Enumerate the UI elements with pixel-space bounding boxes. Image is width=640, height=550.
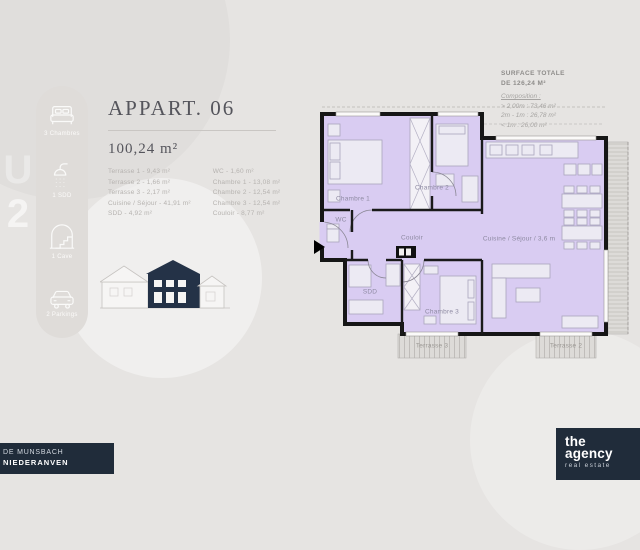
logo-agency: agency bbox=[565, 448, 640, 460]
room-label-chambre2: Chambre 2 bbox=[415, 185, 449, 192]
room-item: Cuisine / Séjour - 41,91 m² bbox=[108, 199, 191, 210]
room-label-sdd: SDD bbox=[363, 289, 377, 296]
address-line1: DE MUNSBACH bbox=[3, 448, 114, 458]
feature-label: 2 Parkings bbox=[46, 312, 77, 318]
project-address: DE MUNSBACH NIEDERANVEN bbox=[0, 443, 114, 474]
room-item: Couloir - 8,77 m² bbox=[213, 209, 281, 220]
room-item: Terrasse 2 - 1,66 m² bbox=[108, 178, 191, 189]
room-item: Chambre 3 - 12,54 m² bbox=[213, 199, 281, 210]
building-elevation bbox=[100, 256, 230, 314]
elevation-drawing bbox=[100, 256, 230, 314]
room-label-terrasse2: Terrasse 2 bbox=[550, 343, 582, 350]
surface-title: SURFACE TOTALE bbox=[501, 69, 565, 79]
feature-label: 3 Chambres bbox=[44, 131, 80, 137]
divider bbox=[108, 130, 276, 131]
shower-icon bbox=[47, 162, 77, 190]
feature-sidebar: 3 Chambres 1 SDD 1 Cave 2 Parkings bbox=[36, 86, 88, 338]
room-item: Terrasse 3 - 2,17 m² bbox=[108, 188, 191, 199]
room-label-chambre3: Chambre 3 bbox=[425, 309, 459, 316]
room-item: Chambre 1 - 13,08 m² bbox=[213, 178, 281, 189]
room-list-left: Terrasse 1 - 9,43 m² Terrasse 2 - 1,66 m… bbox=[108, 167, 191, 220]
composition-label: Composition : bbox=[501, 92, 565, 102]
car-icon bbox=[47, 285, 77, 309]
cave-icon bbox=[47, 223, 77, 251]
room-label-chambre1: Chambre 1 bbox=[336, 196, 370, 203]
address-line2: NIEDERANVEN bbox=[3, 458, 114, 468]
feature-label: 1 SDD bbox=[52, 193, 71, 199]
room-area-list: Terrasse 1 - 9,43 m² Terrasse 2 - 1,66 m… bbox=[108, 167, 280, 220]
feature-cave: 1 Cave bbox=[47, 223, 77, 260]
feature-label: 1 Cave bbox=[52, 254, 73, 260]
room-label-terrasse3: Terrasse 3 bbox=[416, 343, 448, 350]
apartment-area: 100,24 m² bbox=[108, 141, 308, 158]
floor-marker-glyph: U bbox=[0, 148, 36, 192]
room-item: Chambre 2 - 12,54 m² bbox=[213, 188, 281, 199]
logo-realestate: real estate bbox=[565, 462, 640, 469]
feature-bedrooms: 3 Chambres bbox=[44, 102, 80, 137]
feature-parking: 2 Parkings bbox=[46, 285, 77, 318]
room-label-wc: WC bbox=[335, 217, 346, 224]
room-item: Terrasse 1 - 9,43 m² bbox=[108, 167, 191, 178]
floor-plan: Chambre 1 Chambre 2 Couloir Cuisine / Sé… bbox=[312, 102, 630, 360]
agency-logo: the agency real estate bbox=[556, 428, 640, 480]
floor-marker-glyph: 2 bbox=[0, 192, 36, 236]
floor-plan-drawing bbox=[312, 102, 630, 360]
feature-shower: 1 SDD bbox=[47, 162, 77, 199]
room-item: WC - 1,60 m² bbox=[213, 167, 281, 178]
room-label-cuisine: Cuisine / Séjour / 3,6 m bbox=[483, 236, 555, 243]
surface-total: DE 126,24 M² bbox=[501, 79, 565, 89]
room-item: SDD - 4,92 m² bbox=[108, 209, 191, 220]
floor-marker: U 2 bbox=[0, 148, 36, 236]
apartment-title: APPART. 06 bbox=[108, 96, 308, 121]
bed-icon bbox=[47, 102, 77, 128]
apartment-header: APPART. 06 100,24 m² bbox=[108, 96, 308, 158]
room-label-couloir: Couloir bbox=[401, 235, 423, 242]
room-list-right: WC - 1,60 m² Chambre 1 - 13,08 m² Chambr… bbox=[213, 167, 281, 220]
